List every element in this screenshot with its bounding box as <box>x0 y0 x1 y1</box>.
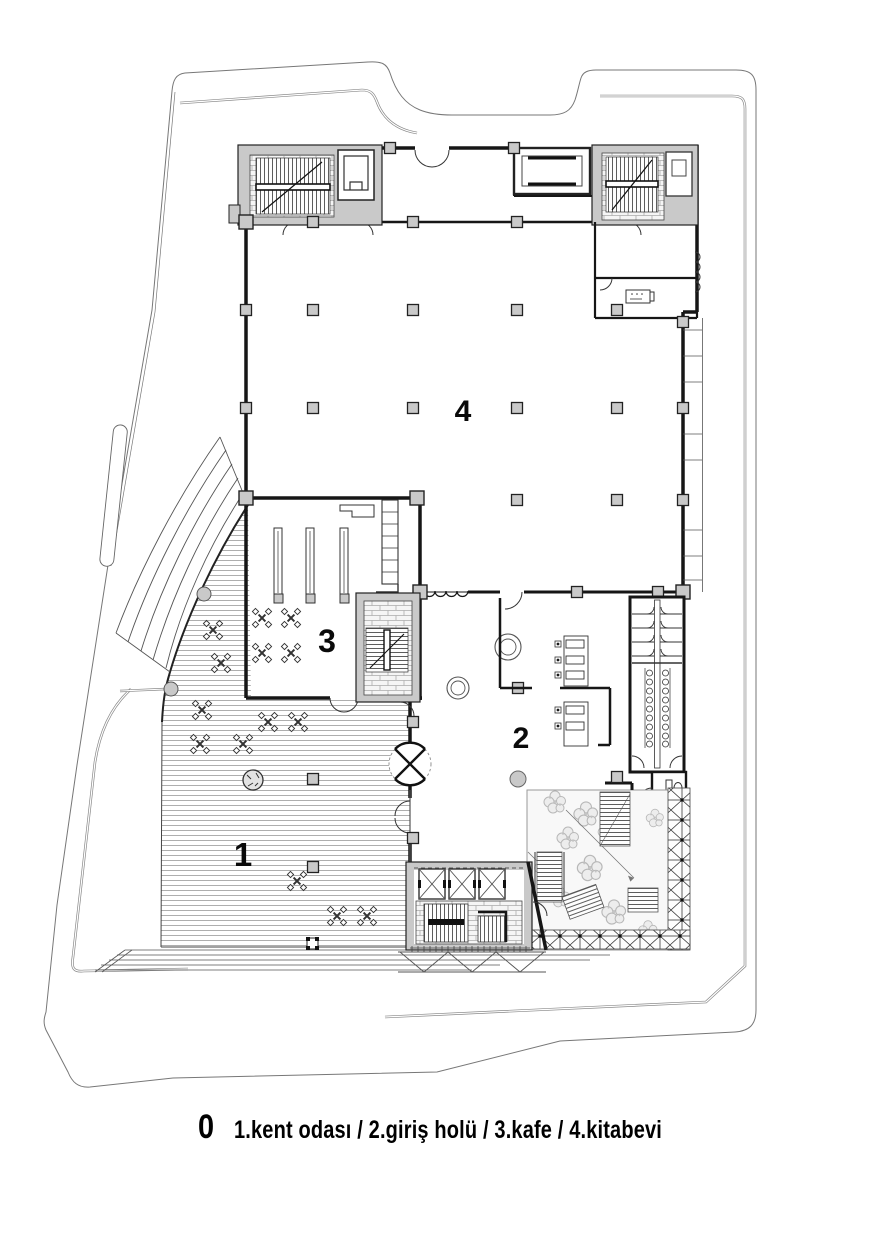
cafe-tables <box>252 608 300 662</box>
elevator-cab <box>478 869 506 899</box>
floor-number-label: 0 <box>198 1108 214 1147</box>
ne-core-room <box>666 152 692 196</box>
stair-core-northeast <box>592 145 698 225</box>
elevator-shaft-north <box>514 148 590 194</box>
room-label-1: 1 <box>234 836 252 873</box>
floor-plan-sheet: 1 2 3 4 0 1.kent odası / 2.giriş holü / … <box>0 0 891 1251</box>
room-legend-label: 1.kent odası / 2.giriş holü / 3.kafe / 4… <box>234 1116 662 1145</box>
east-facade-mullions <box>683 318 703 592</box>
stair-handrail <box>428 919 464 925</box>
hall-column <box>408 833 419 844</box>
deck-joint-marker <box>306 937 319 950</box>
deck-column <box>308 774 319 785</box>
ne-door-swing <box>600 278 612 290</box>
nw-core-elevator <box>338 150 374 200</box>
cafe-table <box>252 608 271 627</box>
room-label-3: 3 <box>318 623 336 659</box>
cafe-shelving <box>274 528 349 603</box>
deck-column <box>308 862 319 873</box>
hall-round-column <box>447 677 469 699</box>
garden-truss-south <box>527 930 690 949</box>
room-label-4: 4 <box>455 395 472 428</box>
stair-core-mid <box>356 593 420 716</box>
deck-edge-post <box>164 682 178 696</box>
ramp-bar <box>99 424 128 567</box>
stair-core-northwest <box>229 145 382 225</box>
garden-truss-east <box>668 788 690 950</box>
floor-plan-drawing: 1 2 3 4 <box>0 0 891 1251</box>
hall-column <box>408 717 419 728</box>
cafe-table <box>281 608 300 627</box>
plan-caption: 0 1.kent odası / 2.giriş holü / 3.kafe /… <box>198 1108 769 1147</box>
wc-block <box>630 597 686 804</box>
copier-fixture <box>626 290 654 303</box>
site-inner-path-northwest <box>180 90 417 133</box>
elevator-cab <box>418 869 446 899</box>
northeast-rooms <box>595 222 700 318</box>
cafe-bar-counter <box>376 500 398 592</box>
elevator-core-south <box>406 862 547 952</box>
revolving-door <box>389 743 431 786</box>
cafe-table <box>281 643 300 662</box>
deck-edge-post <box>197 587 211 601</box>
elevator-cab <box>448 869 476 899</box>
deck-tree <box>243 770 263 790</box>
room-label-2: 2 <box>513 722 530 755</box>
hall-column-dot <box>510 771 526 787</box>
garden-column <box>612 772 623 783</box>
cafe-corner-counter <box>340 505 374 517</box>
cafe-table <box>252 643 271 662</box>
